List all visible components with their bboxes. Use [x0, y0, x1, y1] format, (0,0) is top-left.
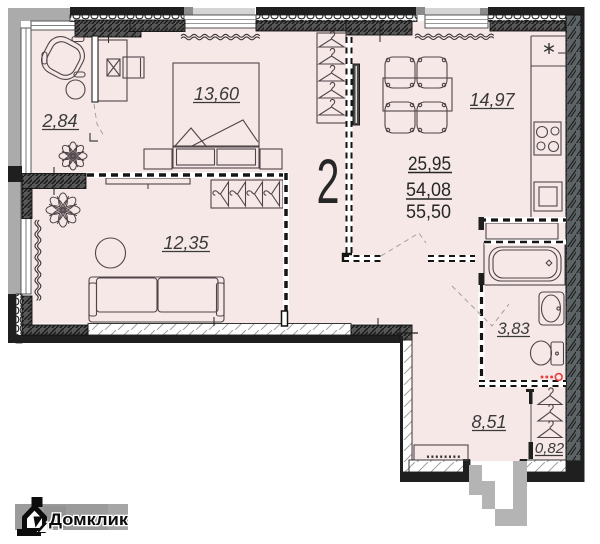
svg-text:55,50: 55,50 — [406, 202, 451, 223]
svg-text:12,35: 12,35 — [163, 233, 209, 253]
svg-text:3,83: 3,83 — [497, 320, 530, 338]
svg-text:8,51: 8,51 — [471, 412, 506, 432]
svg-text:0,82: 0,82 — [535, 440, 565, 457]
svg-text:13,60: 13,60 — [194, 84, 239, 104]
svg-text:2,84: 2,84 — [41, 111, 77, 131]
svg-text:Домклик: Домклик — [49, 510, 129, 529]
svg-text:14,97: 14,97 — [469, 90, 515, 110]
svg-text:54,08: 54,08 — [406, 180, 451, 201]
svg-text:2: 2 — [317, 147, 340, 217]
